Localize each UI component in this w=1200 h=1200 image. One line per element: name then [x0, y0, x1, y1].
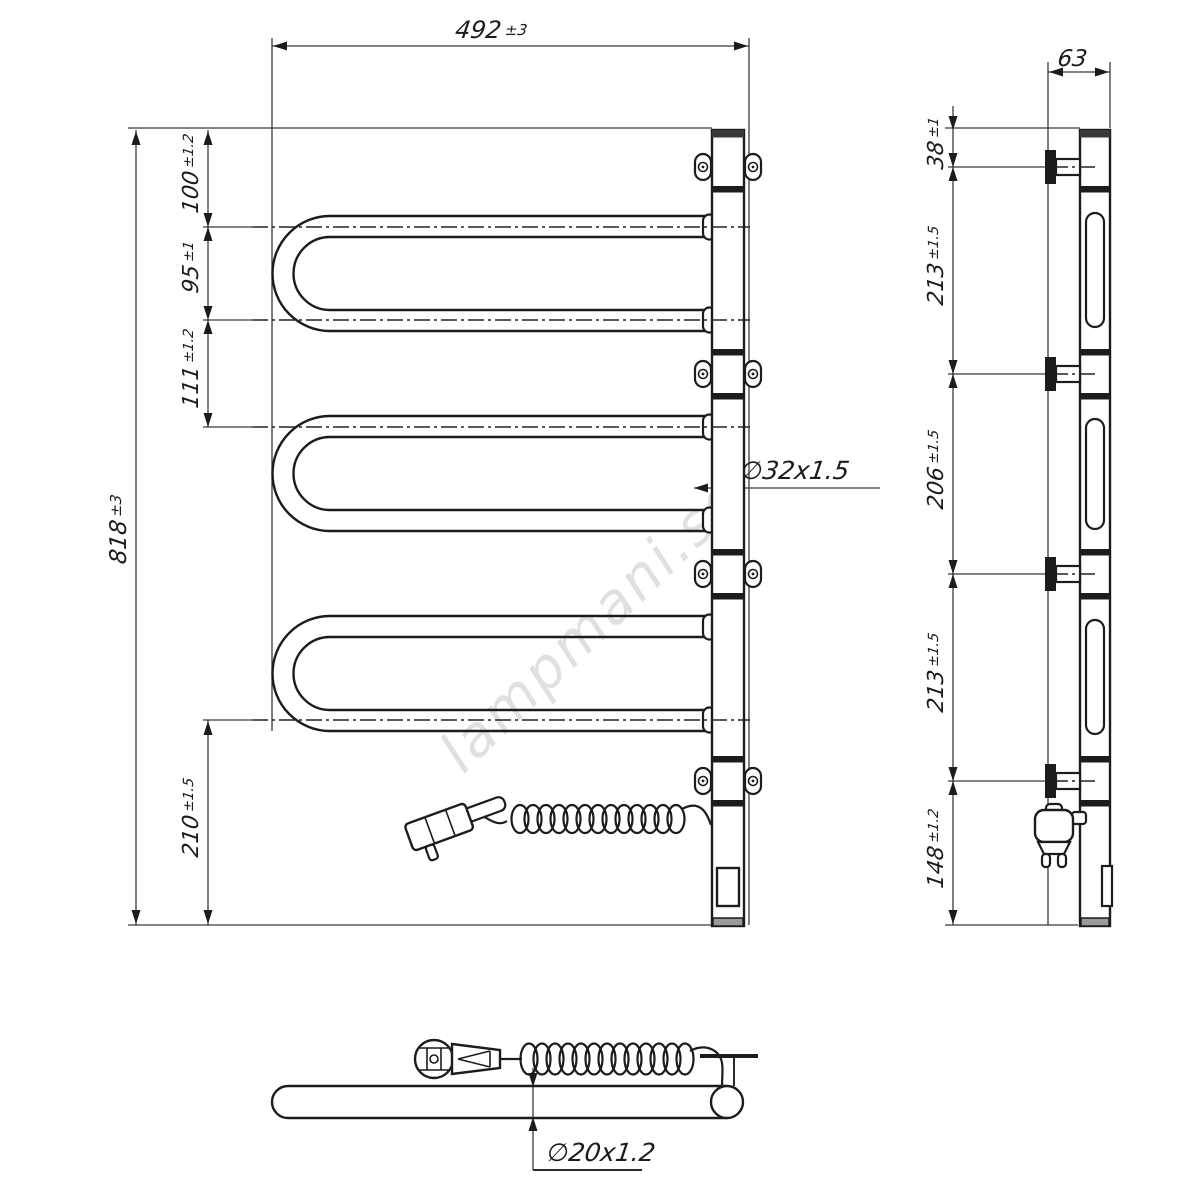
svg-text:95: 95: [178, 263, 204, 295]
collector-rail: [712, 130, 744, 926]
side-slot: [1086, 419, 1104, 529]
svg-text:±1.2: ±1.2: [181, 133, 197, 169]
technical-drawing: lampmani.se: [0, 0, 1200, 1200]
side-view: [1035, 130, 1112, 926]
svg-text:±1: ±1: [181, 240, 197, 263]
dim-loop-gap: 111 ±1.2: [178, 327, 204, 410]
dim-depth: 63: [1056, 46, 1089, 72]
dim-width-value: 492: [453, 16, 503, 44]
power-cord: [404, 790, 711, 865]
dim-side-top: 38 ±1: [923, 116, 949, 171]
svg-text:±1: ±1: [926, 116, 942, 139]
power-plug: [404, 790, 515, 865]
bottom-tube: [272, 1086, 727, 1118]
plug-head: [415, 1040, 453, 1078]
bottom-view: [272, 1040, 758, 1118]
svg-text:63: 63: [1056, 46, 1089, 72]
dim-tube-pitch: 95 ±1: [178, 240, 204, 295]
label-collector-diameter: ∅32x1.5: [739, 456, 851, 485]
svg-text:±1.2: ±1.2: [181, 328, 197, 364]
centerlines: [252, 227, 750, 720]
dim-width-tol: ±3: [504, 21, 529, 39]
plug-pin: [1058, 854, 1066, 867]
towel-loops: [272, 215, 716, 733]
drawing-canvas: lampmani.se: [0, 0, 1200, 1200]
side-slot: [1086, 620, 1104, 734]
dim-side-middle: 206 ±1.5: [923, 428, 949, 511]
label-tube-diameter: ∅20x1.2: [545, 1138, 657, 1167]
svg-text:213: 213: [923, 668, 949, 714]
svg-text:100: 100: [178, 169, 204, 215]
dim-side-lower: 213 ±1.5: [923, 631, 949, 714]
side-rail: [1080, 130, 1112, 926]
svg-text:206: 206: [923, 465, 949, 511]
bottom-cord: [415, 1040, 723, 1087]
dim-height: 818 ±3: [106, 493, 132, 566]
svg-text:38: 38: [923, 139, 949, 171]
dim-side-bottom: 148 ±1.2: [923, 807, 949, 890]
side-slot: [1086, 213, 1104, 327]
svg-text:148: 148: [923, 844, 949, 890]
svg-text:111: 111: [178, 364, 204, 410]
dim-side-upper: 213 ±1.5: [923, 224, 949, 307]
svg-text:±1.2: ±1.2: [926, 808, 942, 844]
svg-text:±1.5: ±1.5: [926, 429, 942, 465]
power-switch: [717, 868, 739, 906]
svg-text:818: 818: [106, 518, 132, 566]
svg-text:213: 213: [923, 261, 949, 307]
dim-width: 492 ±3: [453, 16, 529, 44]
svg-text:±1.5: ±1.5: [181, 777, 197, 813]
svg-text:±1.5: ±1.5: [926, 632, 942, 668]
svg-text:±1.5: ±1.5: [926, 225, 942, 261]
plug-pin: [1042, 854, 1050, 867]
svg-text:±3: ±3: [107, 493, 125, 518]
rail-section-circle: [711, 1086, 743, 1118]
svg-text:∅20x1.2: ∅20x1.2: [545, 1138, 657, 1167]
svg-text:210: 210: [178, 813, 204, 859]
side-switch: [1102, 866, 1112, 906]
dim-bottom-offset: 210 ±1.5: [178, 776, 204, 859]
side-plug: [1035, 804, 1086, 867]
dim-top-offset: 100 ±1.2: [178, 132, 204, 215]
svg-text:∅32x1.5: ∅32x1.5: [739, 456, 851, 485]
